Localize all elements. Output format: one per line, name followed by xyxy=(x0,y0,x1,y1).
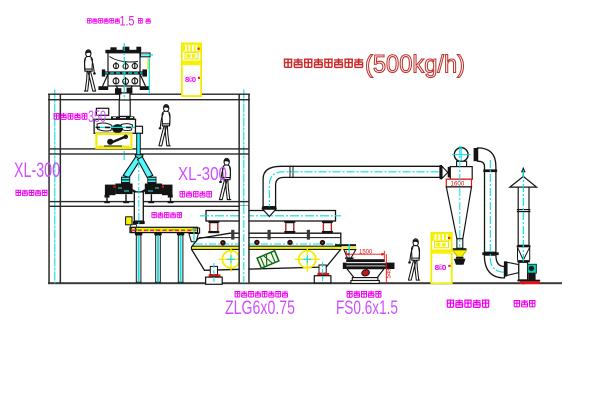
svg-text:1.5: 1.5 xyxy=(120,14,135,29)
svg-text:350: 350 xyxy=(88,107,106,126)
svg-text:XL-300: XL-300 xyxy=(178,163,227,184)
svg-text:ZLG6x0.75: ZLG6x0.75 xyxy=(225,297,295,319)
svg-text:548: 548 xyxy=(387,268,393,279)
svg-text:FS0.6x1.5: FS0.6x1.5 xyxy=(336,297,398,319)
svg-text:1500: 1500 xyxy=(359,249,373,255)
svg-text:XL-300: XL-300 xyxy=(14,159,60,182)
svg-text:(500kg/h): (500kg/h) xyxy=(365,51,465,79)
